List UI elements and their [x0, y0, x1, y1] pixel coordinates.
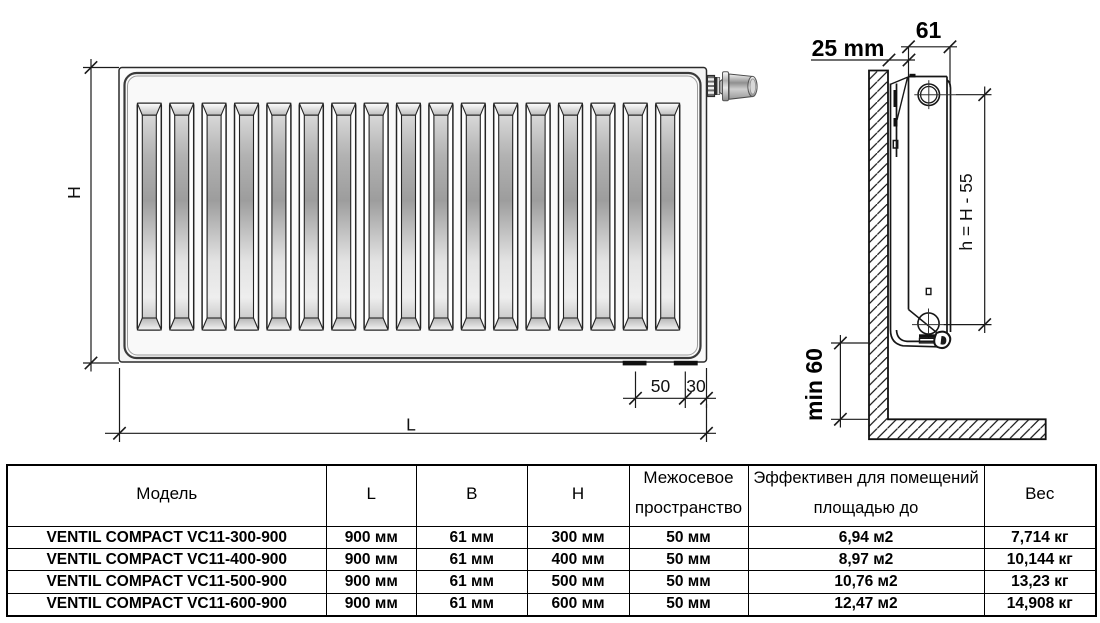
svg-text:30: 30 [686, 376, 706, 396]
svg-text:h = H - 55: h = H - 55 [956, 173, 976, 250]
svg-text:50: 50 [651, 376, 671, 396]
svg-text:61: 61 [916, 17, 942, 43]
svg-text:H: H [64, 186, 84, 199]
svg-text:L: L [406, 415, 416, 435]
svg-text:25 mm: 25 mm [812, 35, 885, 61]
svg-text:min 60: min 60 [801, 348, 827, 421]
